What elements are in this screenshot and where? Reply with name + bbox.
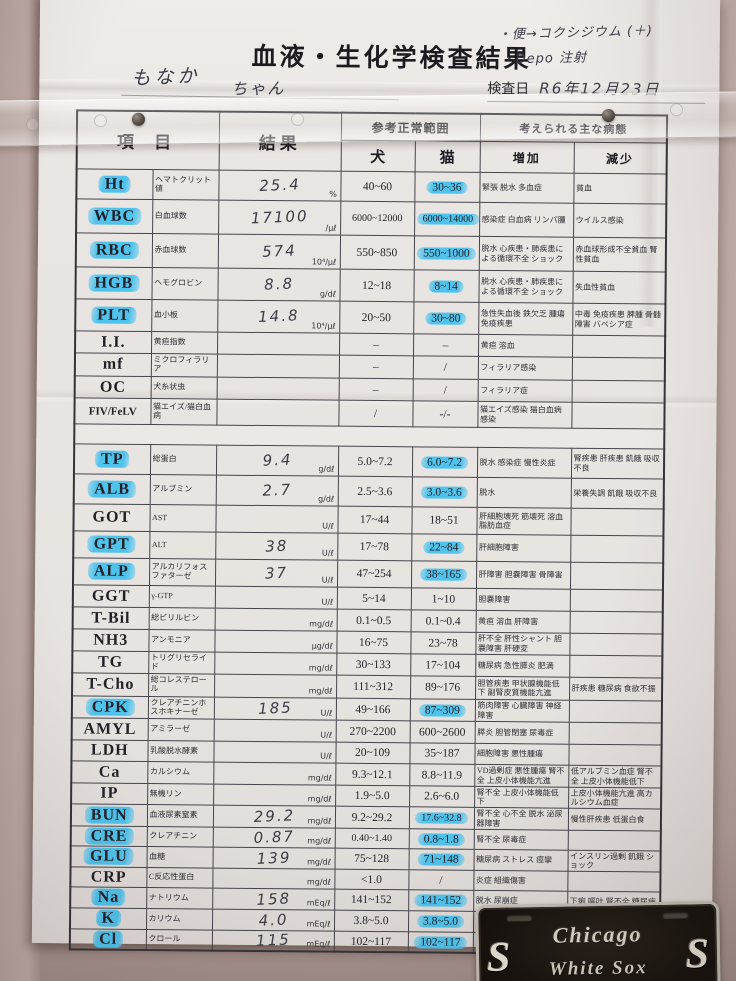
increase-cell: 腎不全 上皮小体機能低下 (474, 786, 568, 808)
result-unit: U/ℓ (320, 731, 332, 740)
cat-range-cell: 89~176 (410, 676, 475, 700)
result-unit: mEq/ℓ (306, 939, 330, 948)
decrease-cell (570, 535, 663, 563)
result-unit: mg/dℓ (308, 794, 332, 803)
dog-range-cell: 30~133 (336, 653, 410, 676)
decrease-cell (569, 655, 662, 678)
dog-range-cell: 9.2~29.2 (335, 806, 409, 829)
increase-cell: 肝細胞壊死 筋壊死 溶血 脂肪血症 (476, 507, 570, 535)
increase-cell: 脱水 心疾患・肺疾患による循環不全 ショック (479, 236, 573, 271)
item-name-cell: 赤血球数 (152, 234, 218, 269)
cat-range-cell: 30~36 (414, 172, 479, 203)
cat-range-cell: 35~187 (409, 743, 474, 765)
item-name-cell: 総蛋白 (150, 445, 216, 476)
handwritten-note-coccidium: ・便→コクシジウム (＋) (498, 20, 654, 43)
item-name-cell: AST (149, 505, 215, 533)
item-name-cell: アルカリフォスファターゼ (149, 559, 215, 587)
item-code-cell: GOT (73, 504, 149, 532)
cat-range-cell: 141~152 (408, 890, 473, 912)
increase-cell: 肝不全 肝性シャント 胆嚢障害 肝硬変 (475, 632, 569, 655)
plate-city-text: Chicago (478, 920, 716, 950)
result-unit: U/ℓ (320, 709, 332, 718)
decrease-cell (569, 700, 662, 723)
decrease-cell: 貧血 (573, 173, 666, 204)
item-name-cell: 黄疸指数 (151, 332, 217, 355)
dog-range-cell: 270~2200 (336, 720, 410, 743)
results-table: 項 目 結果 参考正常範囲 考えられる主な病態 犬 猫 増加 減少 Htヘマトク… (69, 109, 668, 955)
dog-range-cell: – (339, 333, 413, 356)
result-unit: g/dℓ (318, 464, 334, 473)
item-name-cell: クレアチニンホスホキナーゼ (148, 697, 214, 720)
decrease-cell: 肝疾患 糖尿病 食欲不振 (569, 677, 662, 701)
decrease-cell (570, 562, 663, 590)
item-name-cell: 乳酸脱水酵素 (147, 741, 213, 763)
item-name-cell: ナトリウム (146, 888, 212, 910)
item-code-cell: Cl (70, 929, 146, 950)
dog-range-cell: 9.3~12.1 (335, 763, 409, 786)
dog-range-cell: 111~312 (336, 675, 410, 699)
decrease-cell (568, 830, 661, 851)
dog-range-cell: <1.0 (334, 869, 408, 890)
decrease-cell: 上皮小体機能亢進 高カルシウム血症 (568, 787, 661, 809)
increase-cell: 黄疸 溶血 (478, 334, 572, 357)
result-cell (216, 399, 338, 426)
item-name-cell: ミクロフィラリア (151, 354, 217, 378)
item-name-cell: カルシウム (147, 762, 213, 785)
increase-cell: 腎不全 心不全 脱水 泌尿器障害 (474, 807, 568, 830)
increase-cell: 感染症 白血病 リンパ腫 (479, 202, 573, 237)
result-cell (217, 377, 339, 400)
item-code-cell: CRE (71, 826, 147, 847)
result-cell: 37U/ℓ (215, 559, 337, 587)
item-name-cell: 血糖 (147, 847, 213, 869)
whitesox-logo-icon: S (685, 930, 709, 978)
item-name-cell: 総コレステロール (148, 674, 214, 698)
result-cell: 8.8g/dℓ (217, 268, 339, 301)
item-code-cell: Na (70, 887, 146, 909)
item-name-cell: ヘマトクリット値 (152, 170, 218, 201)
dog-range-cell: 1.9~5.0 (335, 785, 409, 807)
decrease-cell: 中毒 免疫疾患 脾腫 骨髄障害 バベシア症 (572, 303, 665, 336)
item-name-cell: アンモニア (148, 630, 214, 653)
result-unit: mg/dℓ (307, 857, 331, 866)
result-cell: 185U/ℓ (214, 697, 336, 720)
decrease-cell: 赤血球形成不全貧血 腎性貧血 (573, 237, 666, 272)
decrease-cell: 低アルブミン血症 腎不全 上皮小体機能低下 (568, 765, 661, 788)
table-row: HGBヘモグロビン8.8g/dℓ12~188~14脱水 心疾患・肺疾患による循環… (75, 267, 665, 304)
decrease-cell (572, 357, 665, 381)
cat-range-cell: 3.8~5.0 (408, 911, 473, 933)
item-code-cell: T-Bil (73, 607, 149, 630)
item-name-cell: クロール (146, 930, 212, 951)
result-cell: 2.7g/dℓ (216, 475, 338, 506)
cat-range-cell: 3.0~3.6 (412, 477, 477, 508)
item-code-cell: T-Cho (72, 673, 148, 697)
increase-cell: VD過剰症 悪性腫瘍 腎不全 上皮小体機能亢進 (474, 764, 568, 787)
increase-cell: 筋肉障害 心臓障害 神経障害 (475, 699, 569, 722)
increase-cell: 糖尿病 ストレス 痙攣 (474, 849, 568, 871)
decrease-cell: インスリン過剰 飢餓 ショック (568, 850, 661, 872)
plate-team-text: White Sox (479, 956, 717, 981)
item-code-cell: NH3 (72, 629, 148, 652)
item-name-cell: トリグリセライド (148, 652, 214, 675)
cat-range-cell: 8.8~11.9 (409, 764, 474, 787)
item-code-cell: TP (74, 444, 150, 475)
push-pin-icon (132, 113, 145, 126)
table-row: PLT血小板14.810⁴/μℓ20~5030~80急性失血後 鉄欠乏 腫瘍 免… (75, 299, 665, 336)
item-name-cell: 血小板 (151, 300, 217, 333)
dog-range-cell: 17~44 (337, 506, 411, 534)
increase-cell: 脱水 (477, 477, 571, 508)
increase-cell: 脱水 心疾患・肺疾患による循環不全 ショック (478, 270, 572, 303)
result-unit: mEq/ℓ (307, 898, 331, 907)
result-cell: mg/dℓ (213, 784, 335, 806)
cat-range-cell: 550~1000 (414, 236, 479, 271)
item-code-cell: ALB (74, 474, 150, 505)
result-cell: 57410⁴/μℓ (218, 234, 340, 269)
dog-range-cell: 5.0~7.2 (338, 446, 412, 477)
dog-range-cell: 17~78 (337, 533, 411, 561)
cat-range-cell: 30~80 (413, 302, 478, 335)
item-code-cell: GLU (71, 846, 147, 868)
increase-cell: 急性失血後 鉄欠乏 腫瘍 免疫疾患 (478, 302, 572, 335)
table-row: WBC白血球数17100/μℓ6000~120006000~14000感染症 白… (76, 199, 666, 238)
decrease-cell (572, 335, 665, 358)
result-unit: mg/dℓ (309, 663, 333, 672)
item-code-cell: AMYL (72, 718, 148, 741)
result-cell: 158mEq/ℓ (212, 888, 334, 910)
increase-cell: 胆嚢障害 (476, 588, 570, 611)
decrease-cell (570, 611, 663, 634)
cat-range-cell: 17~104 (410, 654, 475, 677)
result-cell: 139mg/dℓ (213, 847, 335, 869)
result-unit: U/ℓ (321, 598, 333, 607)
decrease-cell (568, 744, 661, 766)
dog-range-cell: 49~166 (336, 698, 410, 721)
result-cell: 4.0mEq/ℓ (212, 909, 334, 931)
pet-name: もなか (131, 61, 201, 91)
result-cell: U/ℓ (214, 719, 336, 742)
dog-range-cell: 12~18 (339, 269, 413, 302)
result-cell (217, 354, 339, 378)
result-cell: mg/dℓ (212, 868, 334, 889)
result-cell: 38U/ℓ (215, 532, 337, 560)
dog-range-cell: 550~850 (340, 235, 414, 270)
cat-range-cell: 0.8~1.8 (409, 829, 474, 850)
increase-cell: 猫エイズ感染 猫白血病感染 (477, 401, 571, 428)
result-unit: U/ℓ (322, 522, 334, 531)
header-dog: 犬 (341, 140, 415, 172)
result-cell: mg/dℓ (214, 652, 336, 675)
decrease-cell (569, 633, 662, 656)
push-pin-icon (602, 109, 615, 122)
cat-range-cell: 0.1~0.4 (411, 610, 476, 633)
header-cat: 猫 (415, 141, 480, 173)
cat-range-cell: 87~309 (410, 699, 475, 722)
result-cell: U/ℓ (213, 741, 335, 763)
decrease-cell: ウイルス感染 (573, 203, 666, 238)
item-name-cell: ALT (149, 532, 215, 560)
item-code-cell: FIV/FeLV (74, 398, 150, 425)
result-unit: mg/dℓ (307, 836, 331, 845)
item-code-cell: IP (71, 783, 147, 805)
handwritten-note-depo: ・Depo 注射 (501, 46, 587, 67)
decrease-cell (570, 589, 663, 612)
item-code-cell: TG (72, 651, 148, 674)
item-code-cell: OC (75, 376, 151, 399)
result-unit: μg/dℓ (312, 641, 333, 650)
result-cell: 25.4% (218, 170, 340, 201)
item-code-cell: K (70, 908, 146, 930)
increase-cell: 糖尿病 急性膵炎 肥満 (475, 654, 569, 677)
result-cell: U/ℓ (215, 505, 337, 533)
item-name-cell: 無機リン (147, 784, 213, 806)
cat-range-cell: 600~2600 (410, 721, 475, 744)
item-name-cell: クレアチニン (147, 827, 213, 848)
result-cell: 0.87mg/dℓ (213, 827, 335, 848)
item-code-cell: GGT (73, 585, 149, 608)
clip-hole (291, 113, 304, 126)
cat-range-cell: 1~10 (411, 588, 476, 611)
item-name-cell: カリウム (146, 909, 212, 931)
item-code-cell: ALP (73, 558, 149, 586)
result-cell: U/ℓ (215, 586, 337, 609)
dog-range-cell: 75~128 (335, 848, 409, 870)
item-code-cell: CPK (72, 696, 148, 719)
increase-cell: 細胞障害 悪性腫瘍 (474, 743, 568, 765)
result-unit: mg/dℓ (307, 816, 331, 825)
result-unit: 10⁴/μℓ (312, 257, 337, 266)
result-unit: g/dℓ (318, 494, 334, 503)
header-increase: 増加 (480, 141, 574, 173)
result-cell: mg/dℓ (214, 674, 336, 698)
result-unit: U/ℓ (320, 752, 332, 761)
dog-range-cell: / (338, 400, 412, 427)
dog-range-cell: – (339, 378, 413, 401)
item-name-cell: 白血球数 (152, 200, 218, 235)
item-name-cell: アルブミン (150, 475, 216, 506)
item-name-cell: C反応性蛋白 (146, 868, 212, 889)
result-unit: 10⁴/μℓ (311, 321, 336, 330)
increase-cell: 炎症 組織傷害 (473, 870, 567, 891)
item-code-cell: GPT (73, 531, 149, 559)
plate-slot (662, 911, 688, 918)
cat-range-cell: 71~148 (409, 849, 474, 871)
result-unit: mEq/ℓ (307, 919, 331, 928)
dog-range-cell: 141~152 (334, 889, 408, 911)
cat-range-cell: 17.6~32.8 (409, 807, 474, 830)
item-name-cell: アミラーゼ (148, 719, 214, 742)
cat-range-cell: 22~84 (411, 534, 476, 562)
cat-range-cell: -/- (412, 401, 477, 428)
item-name-cell: γ-GTP (149, 586, 215, 609)
dog-range-cell: 5~14 (337, 587, 411, 610)
increase-cell: 脱水 感染症 慢性炎症 (477, 447, 571, 478)
result-cell: mg/dℓ (213, 762, 335, 785)
increase-cell: 黄疸 溶血 肝障害 (476, 610, 570, 633)
dog-range-cell: 20~50 (339, 301, 413, 334)
result-cell: 17100/μℓ (218, 200, 340, 235)
dog-range-cell: 40~60 (340, 171, 414, 202)
decrease-cell: 慢性肝疾患 低蛋白食 (568, 808, 661, 831)
decrease-cell (567, 871, 660, 892)
decrease-cell: 失血性貧血 (572, 271, 665, 304)
item-code-cell: HGB (75, 267, 151, 300)
increase-cell: 膵炎 胆管閉塞 尿毒症 (475, 721, 569, 744)
cat-range-cell: 2.6~6.0 (409, 786, 474, 808)
item-code-cell: mf (75, 353, 151, 377)
item-name-cell: ヘモグロビン (151, 268, 217, 301)
acrylic-clip-bar (0, 91, 736, 146)
dog-range-cell: 16~75 (336, 631, 410, 654)
dog-range-cell: 0.40~1.40 (335, 828, 409, 849)
item-name-cell: 総ビリルビン (149, 608, 215, 631)
item-name-cell: 血液尿素窒素 (147, 805, 213, 828)
photo-scene: 血液・生化学検査結果 もなか ちゃん ・便→コクシジウム (＋) ・Depo 注… (0, 0, 736, 981)
item-code-cell: PLT (75, 299, 151, 332)
license-plate-magnet: S Chicago White Sox S (475, 901, 721, 981)
decrease-cell (569, 722, 662, 745)
increase-cell: 肝障害 胆嚢障害 骨障害 (476, 561, 570, 589)
result-unit: /μℓ (325, 224, 336, 233)
cat-range-cell: 102~117 (408, 932, 473, 953)
dog-range-cell: 0.1~0.5 (337, 609, 411, 632)
result-cell: mg/dℓ (215, 608, 337, 631)
decrease-cell (572, 380, 665, 403)
result-cell: 115mEq/ℓ (212, 930, 334, 952)
dog-range-cell: 2.5~3.6 (338, 476, 412, 507)
dog-range-cell: 102~117 (334, 931, 408, 952)
cat-range-cell: / (408, 870, 473, 891)
increase-cell: フィラリア感染 (478, 356, 572, 380)
dog-range-cell: 47~254 (337, 560, 411, 588)
item-code-cell: WBC (76, 199, 152, 234)
report-title: 血液・生化学検査結果 (251, 37, 531, 75)
clip-hole (94, 114, 107, 127)
result-unit: % (329, 190, 337, 199)
result-unit: mg/dℓ (309, 619, 333, 628)
result-cell: 9.4g/dℓ (216, 445, 338, 476)
item-code-cell: BUN (71, 804, 147, 827)
increase-cell: フィラリア症 (478, 379, 572, 402)
header-decrease: 減少 (574, 142, 667, 174)
increase-cell: 緊張 脱水 多血症 (479, 172, 573, 203)
dog-range-cell: 20~109 (335, 742, 409, 764)
decrease-cell (570, 508, 663, 536)
pet-name-suffix: ちゃん (231, 75, 285, 99)
result-unit: mg/dℓ (307, 877, 331, 886)
cat-range-cell: 38~165 (411, 561, 476, 589)
table-row: RBC赤血球数57410⁴/μℓ550~850550~1000脱水 心疾患・肺疾… (76, 233, 666, 272)
result-unit: mg/dℓ (309, 686, 333, 695)
increase-cell: 胆管疾患 甲状腺機能低下 副腎皮質機能亢進 (475, 676, 569, 700)
cat-range-cell: 18~51 (411, 507, 476, 535)
dog-range-cell: 6000~12000 (340, 201, 414, 236)
decrease-cell: 栄養失調 飢餓 吸収不良 (571, 478, 664, 509)
decrease-cell (571, 402, 664, 429)
result-unit: mg/dℓ (308, 773, 332, 782)
cat-range-cell: 6000~14000 (414, 202, 479, 237)
cat-range-cell: – (413, 334, 478, 357)
cat-range-cell: / (413, 379, 478, 402)
result-unit: U/ℓ (322, 549, 334, 558)
cat-range-cell: 8~14 (413, 270, 478, 303)
decrease-cell: 腎疾患 肝疾患 飢餓 吸収不良 (571, 448, 664, 479)
result-cell: 14.810⁴/μℓ (217, 300, 339, 333)
item-name-cell: 犬糸状虫 (151, 377, 217, 400)
dog-range-cell: 3.8~5.0 (334, 910, 408, 932)
item-code-cell: LDH (71, 740, 147, 762)
increase-cell: 腎不全 尿毒症 (474, 829, 568, 850)
result-unit: g/dℓ (320, 290, 336, 299)
result-cell: μg/dℓ (214, 630, 336, 653)
increase-cell: 肝細胞障害 (476, 534, 570, 562)
item-name-cell: 猫エイズ/猫白血病 (150, 399, 216, 426)
cat-range-cell: / (413, 356, 478, 380)
plate-slot (506, 914, 532, 921)
item-code-cell: Ht (76, 169, 152, 200)
result-cell (217, 332, 339, 355)
item-code-cell: RBC (76, 233, 152, 268)
result-unit: U/ℓ (322, 576, 334, 585)
clip-hole (670, 103, 683, 116)
cat-range-cell: 23~78 (410, 632, 475, 655)
result-cell: 29.2mg/dℓ (213, 805, 335, 828)
dog-range-cell: – (339, 355, 413, 379)
clip-hole (26, 118, 39, 131)
item-code-cell: Ca (71, 761, 147, 784)
item-code-cell: I.I. (75, 331, 151, 354)
cat-range-cell: 6.0~7.2 (412, 447, 477, 478)
item-code-cell: CRP (70, 867, 146, 888)
